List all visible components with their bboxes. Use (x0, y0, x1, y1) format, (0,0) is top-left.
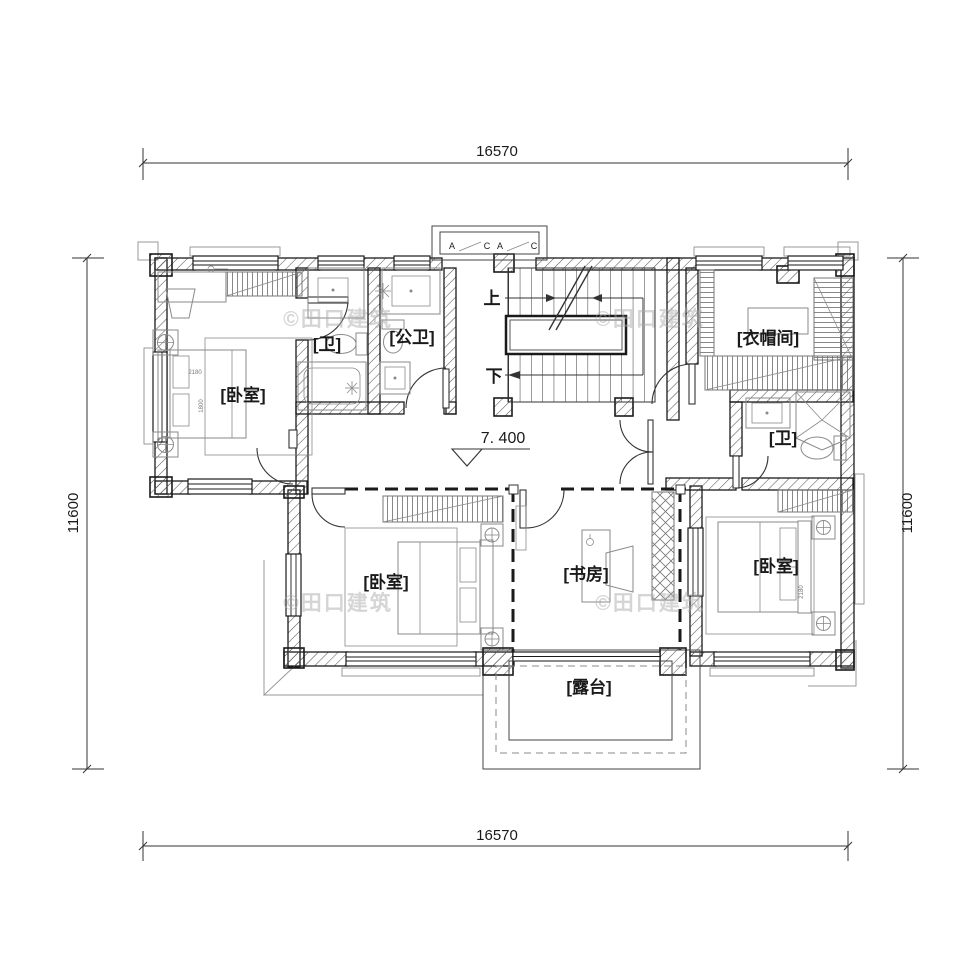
label-bath-east: [卫] (769, 429, 797, 448)
dim-left-value: 11600 (65, 493, 82, 534)
watermark: ©田口建筑 (595, 591, 704, 615)
watermark: ©田口建筑 (283, 307, 392, 331)
bookshelf (652, 492, 674, 600)
watermark: ©田口建筑 (595, 307, 704, 331)
window (346, 652, 476, 666)
bay-label-c1: C (484, 241, 491, 251)
bay-label-a1: A (449, 241, 455, 251)
label-study: [书房] (563, 564, 608, 584)
dim-right-value: 11600 (899, 493, 916, 534)
bay-label-a2: A (497, 241, 503, 251)
bed-dim: 2180 (188, 370, 202, 376)
window (193, 256, 278, 270)
window (153, 352, 167, 442)
bay-label-c2: C (531, 241, 538, 251)
bed-dim: 2180 (799, 585, 805, 599)
label-bedroom-se: [卧室] (753, 556, 798, 576)
label-bedroom-nw: [卧室] (220, 385, 265, 405)
stair-down-label: 下 (486, 367, 503, 386)
label-bedroom-sw: [卧室] (363, 572, 408, 592)
label-bath-public: [公卫] (389, 328, 434, 347)
dim-top-value: 16570 (476, 143, 518, 160)
stair-up-label: 上 (484, 289, 501, 308)
floor-plan-canvas: 16570 16570 11600 11600 (0, 0, 960, 960)
elevation-value: 7. 400 (481, 430, 526, 447)
label-terrace: [露台] (566, 677, 611, 697)
label-bath-ensuite: [卫] (313, 335, 341, 354)
window (696, 256, 762, 270)
label-cloakroom: [衣帽间] (737, 328, 799, 348)
shower-head (375, 283, 391, 299)
window (688, 528, 703, 596)
window (714, 652, 810, 666)
floor-drain (345, 381, 359, 395)
floor-plan-drawing: 16570 16570 11600 11600 (0, 0, 960, 960)
window (788, 256, 843, 270)
watermark: ©田口建筑 (283, 591, 392, 615)
bed-dim: 1800 (199, 399, 205, 413)
window (188, 479, 252, 494)
dim-bottom-value: 16570 (476, 827, 518, 844)
staircase: 上 下 (484, 266, 656, 402)
